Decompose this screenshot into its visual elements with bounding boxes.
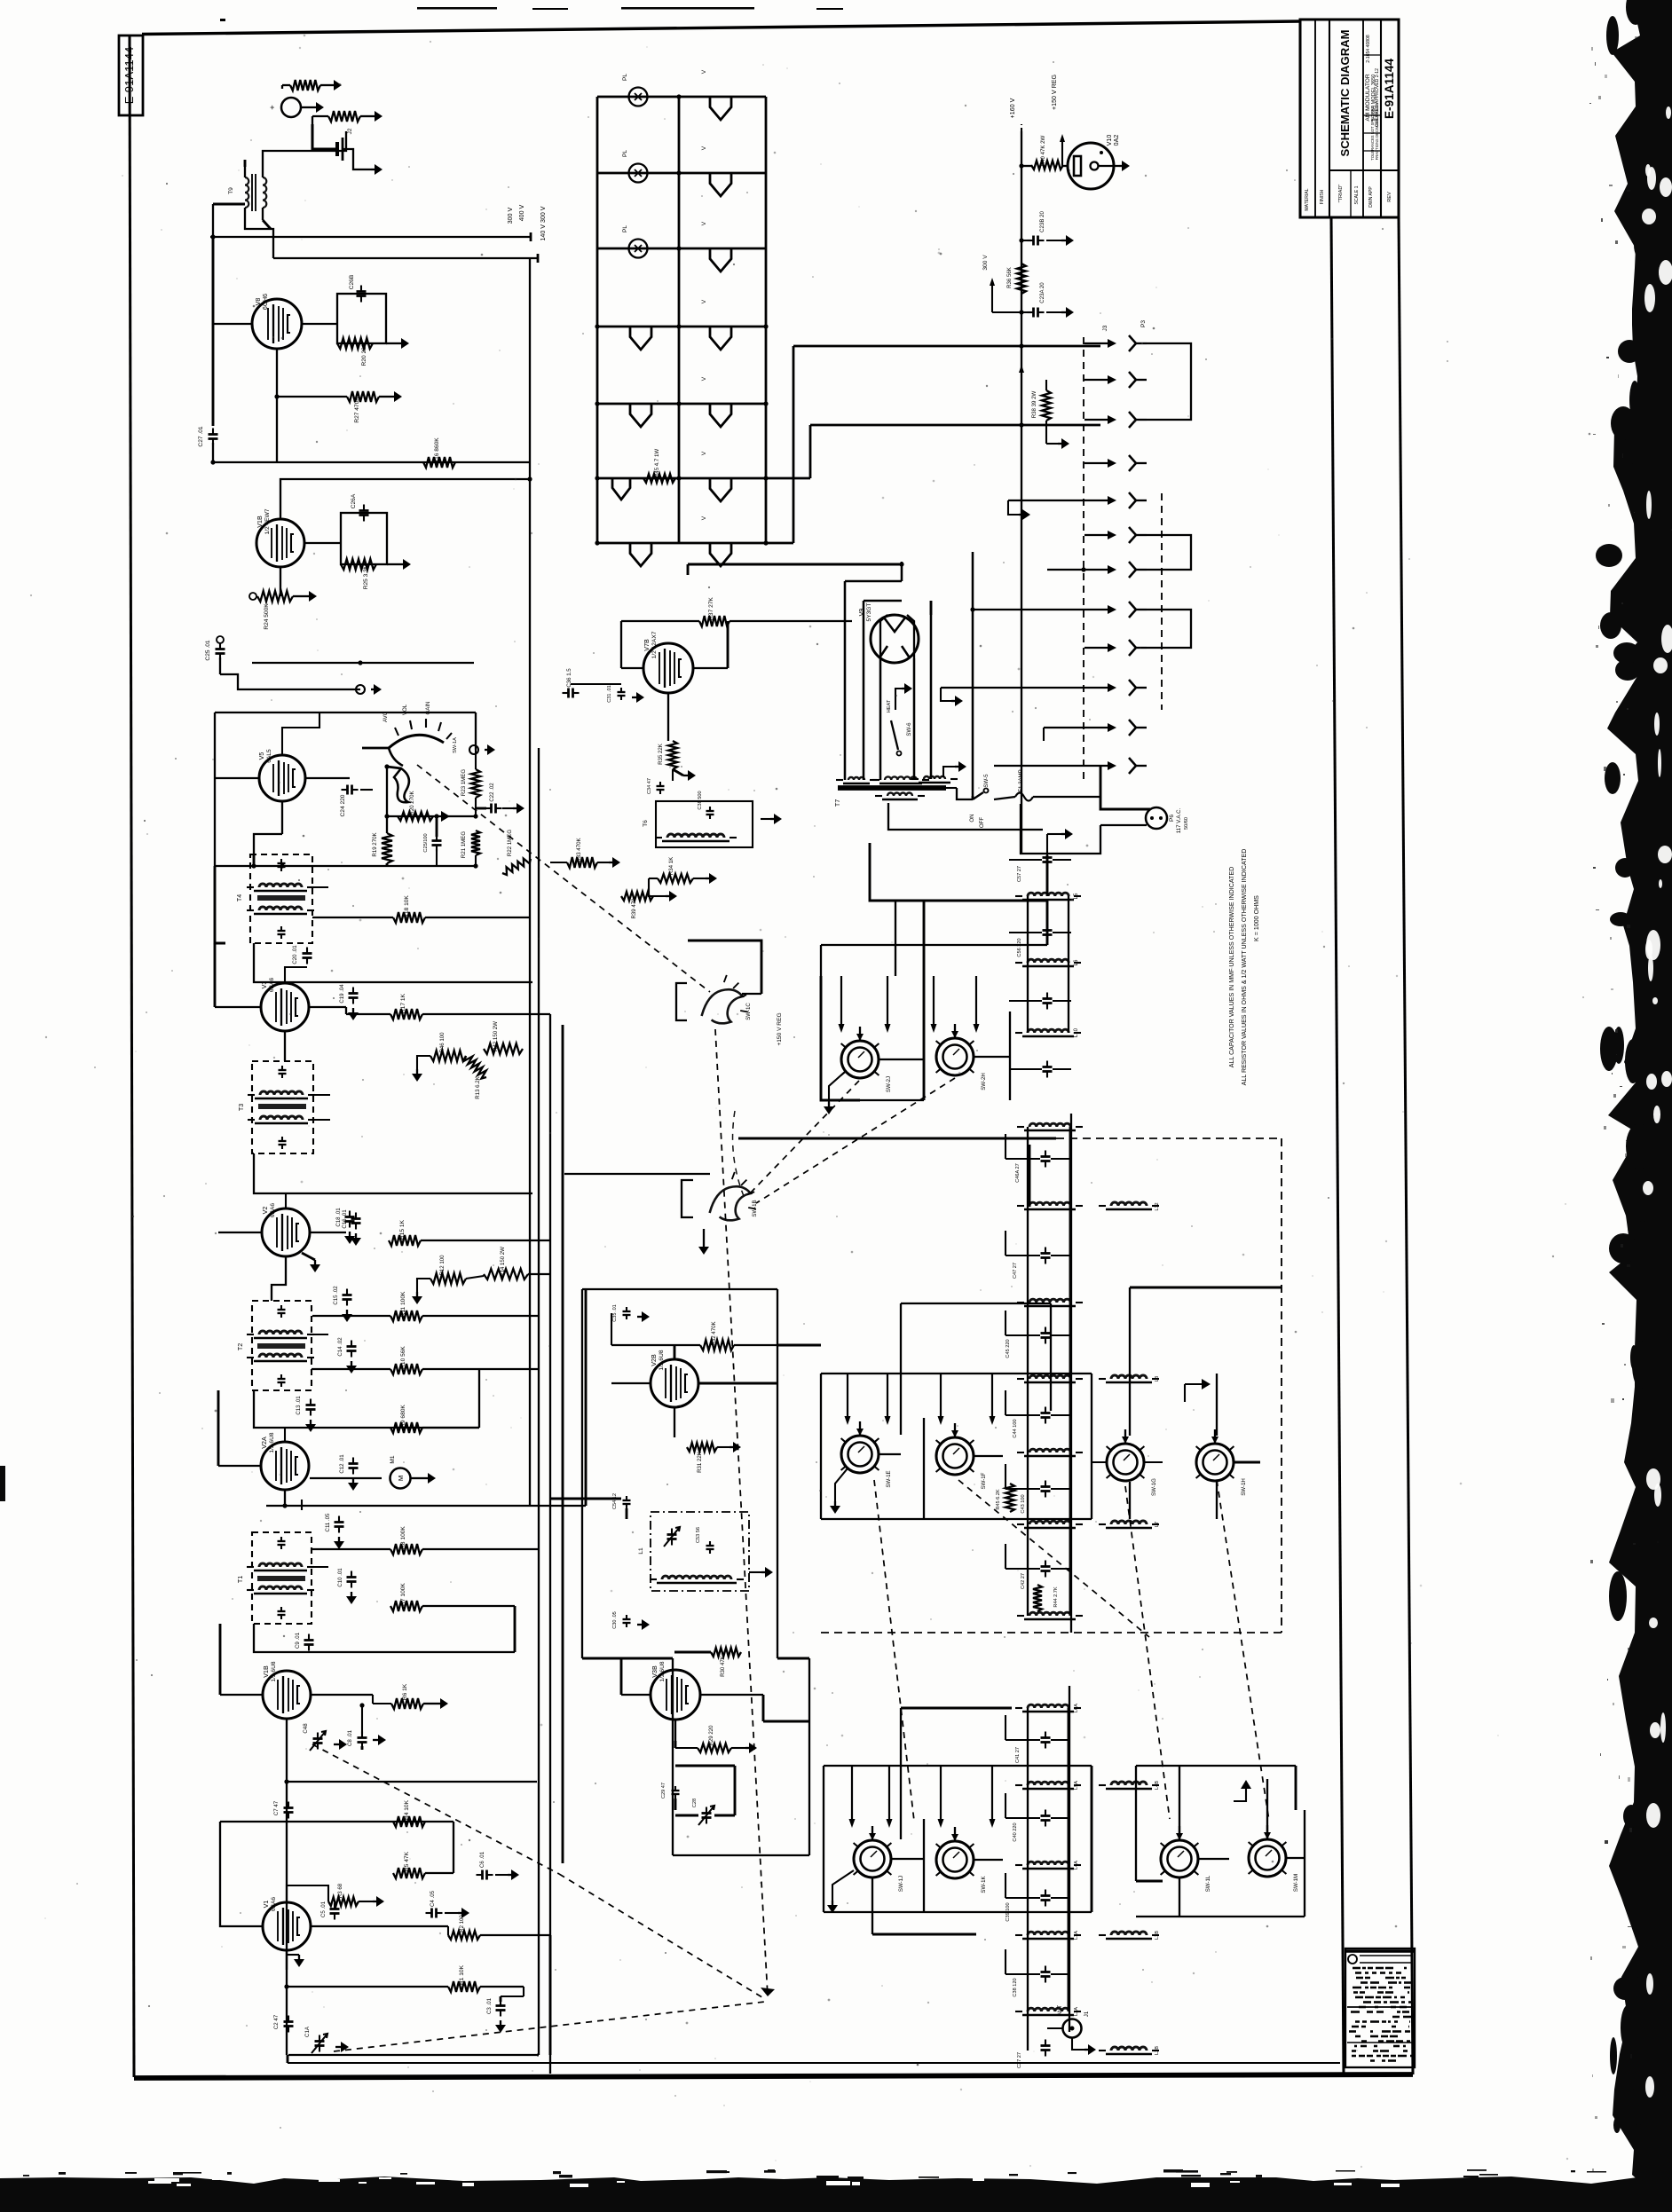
svg-text:R19 270K: R19 270K bbox=[372, 832, 378, 856]
svg-text:R5 47K: R5 47K bbox=[404, 1851, 410, 1871]
svg-text:PL: PL bbox=[622, 225, 628, 232]
svg-text:R6 1K: R6 1K bbox=[402, 1683, 408, 1700]
svg-text:1/2 6U8: 1/2 6U8 bbox=[269, 1432, 275, 1452]
svg-text:V10: V10 bbox=[1106, 135, 1113, 146]
svg-text:6BA6: 6BA6 bbox=[271, 1897, 277, 1911]
svg-text:C23A 20: C23A 20 bbox=[1039, 282, 1045, 303]
svg-text:R33 470K: R33 470K bbox=[576, 838, 582, 862]
svg-text:R21 1MEG: R21 1MEG bbox=[461, 831, 467, 858]
svg-text:SW-1L: SW-1L bbox=[1205, 1875, 1211, 1892]
svg-text:V3B: V3B bbox=[651, 1665, 659, 1678]
svg-text:C10 .01: C10 .01 bbox=[337, 1568, 343, 1587]
svg-text:C28: C28 bbox=[692, 1799, 698, 1807]
svg-text:R44 2.7K: R44 2.7K bbox=[1053, 1586, 1059, 1608]
svg-text:300 V: 300 V bbox=[507, 207, 514, 224]
svg-text:1/2 6U8: 1/2 6U8 bbox=[659, 1350, 665, 1370]
svg-text:M: M bbox=[397, 1476, 405, 1481]
svg-text:R10 56K: R10 56K bbox=[400, 1346, 406, 1369]
svg-text:R34 1K: R34 1K bbox=[668, 857, 674, 875]
svg-text:E-91A1144: E-91A1144 bbox=[122, 47, 136, 105]
svg-text:R46 100: R46 100 bbox=[439, 1032, 446, 1053]
svg-text:R20 220: R20 220 bbox=[361, 343, 367, 366]
svg-text:C2 47: C2 47 bbox=[273, 2014, 280, 2029]
svg-text:R12 100: R12 100 bbox=[439, 1255, 446, 1276]
svg-text:PL: PL bbox=[622, 150, 628, 157]
svg-text:OFF: OFF bbox=[979, 817, 985, 828]
svg-text:L6: L6 bbox=[1073, 959, 1079, 965]
svg-text:V8: V8 bbox=[255, 298, 262, 306]
svg-text:R40 47K 2W: R40 47K 2W bbox=[1040, 135, 1046, 166]
svg-text:C23B 20: C23B 20 bbox=[1039, 211, 1045, 232]
svg-text:C20 .01: C20 .01 bbox=[292, 945, 298, 964]
svg-text:V3: V3 bbox=[261, 981, 268, 989]
svg-text:K = 1000 OHMS: K = 1000 OHMS bbox=[1253, 895, 1260, 941]
svg-text:R8 100K: R8 100K bbox=[400, 1526, 406, 1549]
svg-text:C38 500: C38 500 bbox=[698, 791, 703, 809]
svg-text:V5: V5 bbox=[258, 752, 265, 760]
svg-text:T6: T6 bbox=[643, 820, 649, 827]
svg-text:6BA6: 6BA6 bbox=[269, 978, 275, 992]
svg-text:MATERIAL: MATERIAL bbox=[1305, 188, 1310, 210]
svg-text:T1: T1 bbox=[237, 1576, 244, 1583]
svg-text:C9 .01: C9 .01 bbox=[295, 1632, 301, 1649]
svg-text:V: V bbox=[701, 516, 707, 520]
svg-text:6AL5: 6AL5 bbox=[266, 749, 272, 763]
svg-text:R38 39 2W: R38 39 2W bbox=[1031, 391, 1037, 419]
svg-text:SW-1K: SW-1K bbox=[981, 1876, 987, 1893]
svg-text:SW-1C: SW-1C bbox=[745, 1003, 752, 1020]
svg-text:R15 1K: R15 1K bbox=[399, 1219, 406, 1240]
svg-text:L3A: L3A bbox=[1074, 1931, 1079, 1940]
svg-text:C46A 27: C46A 27 bbox=[1015, 1163, 1021, 1182]
svg-text:R42 150 2W: R42 150 2W bbox=[493, 1021, 499, 1051]
svg-text:+: + bbox=[268, 105, 278, 110]
svg-text:V1B: V1B bbox=[263, 1665, 270, 1678]
svg-text:1/2 4EW7: 1/2 4EW7 bbox=[264, 508, 271, 534]
svg-text:R36 56K: R36 56K bbox=[1006, 267, 1013, 288]
svg-text:SW-6: SW-6 bbox=[906, 722, 912, 736]
svg-text:R45 6.2K: R45 6.2K bbox=[996, 1489, 1001, 1510]
svg-text:R16 860K: R16 860K bbox=[434, 437, 440, 464]
svg-text:SW-2J: SW-2J bbox=[886, 1076, 892, 1092]
svg-text:1/2 12AX7: 1/2 12AX7 bbox=[651, 631, 658, 658]
svg-text:J2: J2 bbox=[347, 128, 353, 134]
svg-text:E-91A1144: E-91A1144 bbox=[1383, 59, 1396, 119]
svg-text:SW-1H: SW-1H bbox=[1241, 1478, 1247, 1496]
svg-text:300 V: 300 V bbox=[982, 255, 989, 271]
svg-text:V: V bbox=[701, 299, 707, 303]
svg-text:"TRIAD": "TRIAD" bbox=[1338, 185, 1344, 203]
svg-text:C57 27: C57 27 bbox=[1017, 866, 1022, 882]
svg-text:C27 .01: C27 .01 bbox=[198, 426, 204, 446]
svg-text:FINISH: FINISH bbox=[1320, 189, 1325, 204]
svg-text:R35 22K: R35 22K bbox=[658, 744, 664, 765]
svg-text:C3 .01: C3 .01 bbox=[486, 1997, 493, 2014]
svg-text:T9: T9 bbox=[228, 187, 234, 194]
svg-text:R9 680K: R9 680K bbox=[400, 1405, 406, 1428]
svg-text:SW-2H: SW-2H bbox=[981, 1073, 987, 1090]
svg-text:T3: T3 bbox=[238, 1104, 245, 1111]
svg-text:6BA6: 6BA6 bbox=[270, 1203, 276, 1217]
svg-text:C11 .05: C11 .05 bbox=[325, 1513, 331, 1532]
svg-text:C19 .04: C19 .04 bbox=[339, 984, 345, 1004]
svg-text:T2: T2 bbox=[237, 1343, 244, 1350]
svg-text:V2B: V2B bbox=[651, 1354, 658, 1366]
svg-text:SCHEMATIC DIAGRAM: SCHEMATIC DIAGRAM bbox=[1338, 29, 1352, 156]
svg-text:C26A: C26A bbox=[351, 493, 357, 508]
svg-text:1/2 6U8: 1/2 6U8 bbox=[659, 1661, 666, 1681]
svg-text:0A2: 0A2 bbox=[1113, 135, 1120, 146]
svg-text:C29 47: C29 47 bbox=[661, 1783, 666, 1799]
svg-text:117 V.A.C.: 117 V.A.C. bbox=[1176, 807, 1182, 833]
svg-text:V: V bbox=[701, 69, 707, 74]
svg-text:1/2 6U8: 1/2 6U8 bbox=[271, 1661, 277, 1681]
svg-text:F1 3AMP: F1 3AMP bbox=[1018, 769, 1024, 791]
svg-text:ON: ON bbox=[969, 814, 975, 822]
svg-text:C30 .05: C30 .05 bbox=[612, 1611, 618, 1629]
svg-text:C48: C48 bbox=[303, 1723, 309, 1734]
svg-text:ANT: ANT bbox=[1057, 2005, 1063, 2016]
svg-text:VOL: VOL bbox=[402, 704, 408, 715]
svg-text:R7 100K: R7 100K bbox=[400, 1583, 406, 1606]
svg-text:REV: REV bbox=[1387, 192, 1392, 202]
svg-text:L5A: L5A bbox=[1074, 1781, 1079, 1790]
svg-text:R27 470K: R27 470K bbox=[354, 397, 360, 423]
svg-text:5Y3GT: 5Y3GT bbox=[866, 603, 872, 622]
svg-text:V: V bbox=[701, 146, 707, 150]
svg-text:R17 1K: R17 1K bbox=[400, 993, 406, 1013]
svg-text:C47 27: C47 27 bbox=[1013, 1263, 1018, 1279]
svg-text:AVC: AVC bbox=[383, 711, 389, 722]
svg-text:SW-1F: SW-1F bbox=[981, 1472, 987, 1489]
svg-text:C25 .01: C25 .01 bbox=[205, 640, 211, 660]
svg-text:C37 27: C37 27 bbox=[1017, 2052, 1022, 2068]
svg-text:C4 .05: C4 .05 bbox=[430, 1890, 436, 1907]
svg-text:C7 47: C7 47 bbox=[273, 1800, 280, 1815]
svg-text:C1A: C1A bbox=[304, 2026, 311, 2037]
svg-text:V7B: V7B bbox=[643, 639, 651, 651]
svg-text:R23 1MEG: R23 1MEG bbox=[461, 769, 467, 796]
svg-text:C5 .01: C5 .01 bbox=[320, 1901, 327, 1917]
svg-text:C8 .01: C8 .01 bbox=[347, 1729, 353, 1746]
svg-text:L3B: L3B bbox=[1155, 1931, 1160, 1940]
svg-text:SCALE 1: SCALE 1 bbox=[1354, 185, 1360, 204]
svg-text:C25/100: C25/100 bbox=[423, 833, 429, 852]
svg-text:6CH6: 6CH6 bbox=[262, 294, 269, 310]
svg-text:M1: M1 bbox=[390, 1455, 396, 1463]
svg-text:C14 .02: C14 .02 bbox=[337, 1337, 343, 1357]
svg-text:GAIN: GAIN bbox=[425, 702, 431, 715]
svg-text:V: V bbox=[701, 376, 707, 381]
svg-text:R39 470: R39 470 bbox=[631, 898, 637, 919]
svg-text:C54 12: C54 12 bbox=[612, 1493, 618, 1509]
svg-text:HEAT: HEAT bbox=[887, 699, 892, 712]
svg-text:R31 22K: R31 22K bbox=[697, 1452, 703, 1473]
svg-text:R1 10K: R1 10K bbox=[459, 1964, 465, 1985]
svg-text:R18 10K: R18 10K bbox=[404, 895, 410, 918]
svg-text:+160 V: +160 V bbox=[1009, 98, 1016, 118]
svg-text:R2 100: R2 100 bbox=[459, 1915, 465, 1933]
svg-text:C45 220: C45 220 bbox=[1006, 1339, 1011, 1358]
svg-text:SW-5: SW-5 bbox=[983, 774, 990, 788]
svg-text:SW-1E: SW-1E bbox=[886, 1470, 892, 1487]
svg-text:ALL CAPACITOR VALUES IN MMF UN: ALL CAPACITOR VALUES IN MMF UNLESS OTHER… bbox=[1228, 867, 1235, 1068]
svg-text:L7: L7 bbox=[1155, 1522, 1160, 1527]
svg-text:L2A: L2A bbox=[1074, 2007, 1079, 2016]
svg-text:R20 270K: R20 270K bbox=[409, 791, 415, 815]
svg-text:C40 220: C40 220 bbox=[1013, 1822, 1018, 1841]
svg-text:C16 .01: C16 .01 bbox=[342, 1209, 348, 1229]
svg-text:R32 470K: R32 470K bbox=[711, 1321, 717, 1345]
svg-text:R11 100K: R11 100K bbox=[400, 1291, 406, 1317]
svg-text:V9: V9 bbox=[858, 609, 865, 617]
svg-text:C31 .01: C31 .01 bbox=[607, 685, 612, 703]
svg-text:R29 220: R29 220 bbox=[708, 1725, 714, 1746]
svg-text:T4: T4 bbox=[236, 894, 243, 901]
svg-text:C12 .01: C12 .01 bbox=[339, 1454, 345, 1474]
svg-text:400 V: 400 V bbox=[518, 204, 525, 221]
svg-text:C44 100: C44 100 bbox=[1013, 1419, 1018, 1437]
svg-text:R3 68: R3 68 bbox=[337, 1883, 343, 1898]
svg-text:L2B: L2B bbox=[1155, 2046, 1160, 2055]
svg-text:J3: J3 bbox=[1102, 325, 1108, 331]
svg-text:C24 220: C24 220 bbox=[340, 794, 346, 816]
svg-text:C13 .01: C13 .01 bbox=[296, 1396, 302, 1415]
svg-text:V1B: V1B bbox=[256, 516, 264, 528]
svg-text:L5: L5 bbox=[1073, 893, 1079, 899]
svg-text:L8: L8 bbox=[1155, 1376, 1160, 1382]
svg-text:C6 .01: C6 .01 bbox=[479, 1851, 485, 1868]
svg-text:DWN APP: DWN APP bbox=[1368, 186, 1374, 208]
svg-text:C22 .02: C22 .02 bbox=[489, 783, 495, 802]
svg-text:L1: L1 bbox=[638, 1547, 644, 1555]
svg-text:R45 4.7 1W: R45 4.7 1W bbox=[654, 449, 660, 477]
svg-text:SW-1J: SW-1J bbox=[898, 1876, 904, 1892]
svg-text:C41 27: C41 27 bbox=[1015, 1747, 1021, 1763]
svg-text:C35 .01: C35 .01 bbox=[612, 1304, 618, 1322]
svg-text:140 V 300 V: 140 V 300 V bbox=[540, 206, 547, 240]
svg-text:50/60: 50/60 bbox=[1184, 817, 1189, 830]
svg-text:SW-1G: SW-1G bbox=[1151, 1478, 1157, 1496]
svg-text:V2A: V2A bbox=[261, 1437, 268, 1449]
svg-text:R24 500K: R24 500K bbox=[264, 603, 270, 630]
svg-text:L10: L10 bbox=[1073, 1027, 1079, 1037]
svg-text:R22 1MEG: R22 1MEG bbox=[507, 830, 513, 856]
svg-text:FRACTIONS DECIMALS ANGLES: FRACTIONS DECIMALS ANGLES bbox=[1375, 102, 1379, 160]
svg-text:R37 27K: R37 27K bbox=[708, 597, 714, 620]
svg-text:R13 6.2K: R13 6.2K bbox=[475, 1076, 481, 1098]
svg-text:+150 V REG: +150 V REG bbox=[1051, 75, 1058, 110]
svg-text:C36 1.5: C36 1.5 bbox=[566, 668, 572, 688]
svg-text:L4B: L4B bbox=[1155, 1781, 1160, 1790]
svg-text:V2: V2 bbox=[262, 1207, 269, 1215]
svg-text:C56 220: C56 220 bbox=[1017, 938, 1022, 956]
svg-text:C43 100: C43 100 bbox=[1021, 1494, 1026, 1513]
svg-text:PL: PL bbox=[622, 74, 628, 81]
svg-text:R25 3.3M: R25 3.3M bbox=[363, 564, 369, 590]
svg-text:C26B: C26B bbox=[349, 274, 355, 289]
svg-text:C15 .02: C15 .02 bbox=[333, 1286, 339, 1305]
svg-text:SW-1A: SW-1A bbox=[453, 737, 458, 753]
svg-text:V: V bbox=[701, 451, 707, 455]
svg-text:C38 120: C38 120 bbox=[1013, 1978, 1018, 1996]
svg-text:J1: J1 bbox=[1084, 2011, 1090, 2017]
svg-text:SW-1M: SW-1M bbox=[1293, 1874, 1299, 1892]
svg-text:P6: P6 bbox=[1169, 815, 1175, 822]
svg-text:C42 27: C42 27 bbox=[1021, 1573, 1026, 1589]
svg-text:ALL RESISTOR VALUES IN OHMS &: ALL RESISTOR VALUES IN OHMS & 1/2 WATT U… bbox=[1241, 849, 1248, 1086]
svg-text:C53 56: C53 56 bbox=[696, 1527, 701, 1543]
svg-text:R30 47K: R30 47K bbox=[720, 1656, 726, 1677]
svg-text:V1: V1 bbox=[263, 1901, 270, 1909]
svg-text:R14 150 2W: R14 150 2W bbox=[500, 1247, 506, 1277]
svg-text:C34 47: C34 47 bbox=[647, 778, 652, 794]
svg-text:2-1654 40808: 2-1654 40808 bbox=[1366, 35, 1371, 63]
svg-text:+150 V REG: +150 V REG bbox=[777, 1012, 783, 1045]
svg-text:V: V bbox=[701, 221, 707, 225]
svg-text:C18 .01: C18 .01 bbox=[335, 1208, 342, 1227]
svg-text:L6A: L6A bbox=[1074, 1704, 1079, 1712]
svg-text:L12: L12 bbox=[1155, 1202, 1160, 1210]
svg-text:L4A: L4A bbox=[1074, 1861, 1079, 1870]
svg-text:T7: T7 bbox=[834, 799, 841, 807]
svg-text:R4 10K: R4 10K bbox=[404, 1799, 410, 1820]
svg-text:P3: P3 bbox=[1140, 320, 1147, 327]
